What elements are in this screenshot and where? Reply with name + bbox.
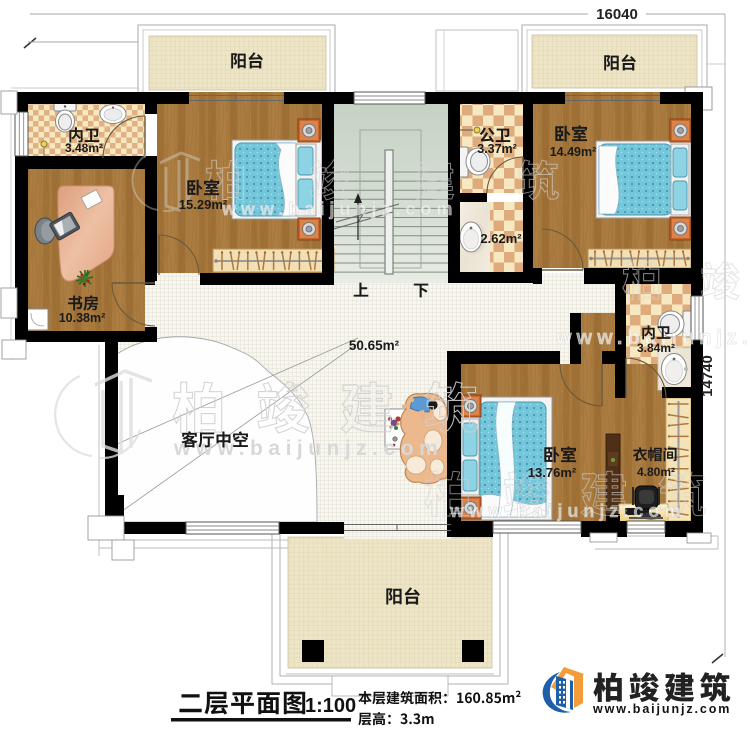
svg-text:www.baijunjz.com: www.baijunjz.com (221, 199, 457, 219)
svg-text:2.62m²: 2.62m² (480, 231, 522, 246)
svg-text:www.baijunjz.com: www.baijunjz.com (592, 702, 731, 716)
svg-text:www.baijunjz.com: www.baijunjz.com (449, 501, 685, 521)
svg-text:16040: 16040 (596, 6, 638, 23)
svg-text:4.80m²: 4.80m² (637, 465, 675, 479)
svg-text:www.baijunjz.com: www.baijunjz.com (173, 437, 443, 460)
svg-text:3.84m²: 3.84m² (637, 341, 675, 355)
svg-text:14.49m²: 14.49m² (550, 145, 597, 159)
svg-text:50.65m²: 50.65m² (349, 338, 400, 353)
svg-text:3.48m²: 3.48m² (65, 141, 103, 155)
svg-text:15.29m²: 15.29m² (179, 197, 228, 212)
svg-text:3.37m²: 3.37m² (477, 142, 517, 156)
svg-text:1:100: 1:100 (305, 695, 356, 717)
svg-text:13.76m²: 13.76m² (528, 465, 577, 480)
svg-text:14740: 14740 (699, 355, 716, 397)
svg-text:10.38m²: 10.38m² (59, 311, 106, 325)
